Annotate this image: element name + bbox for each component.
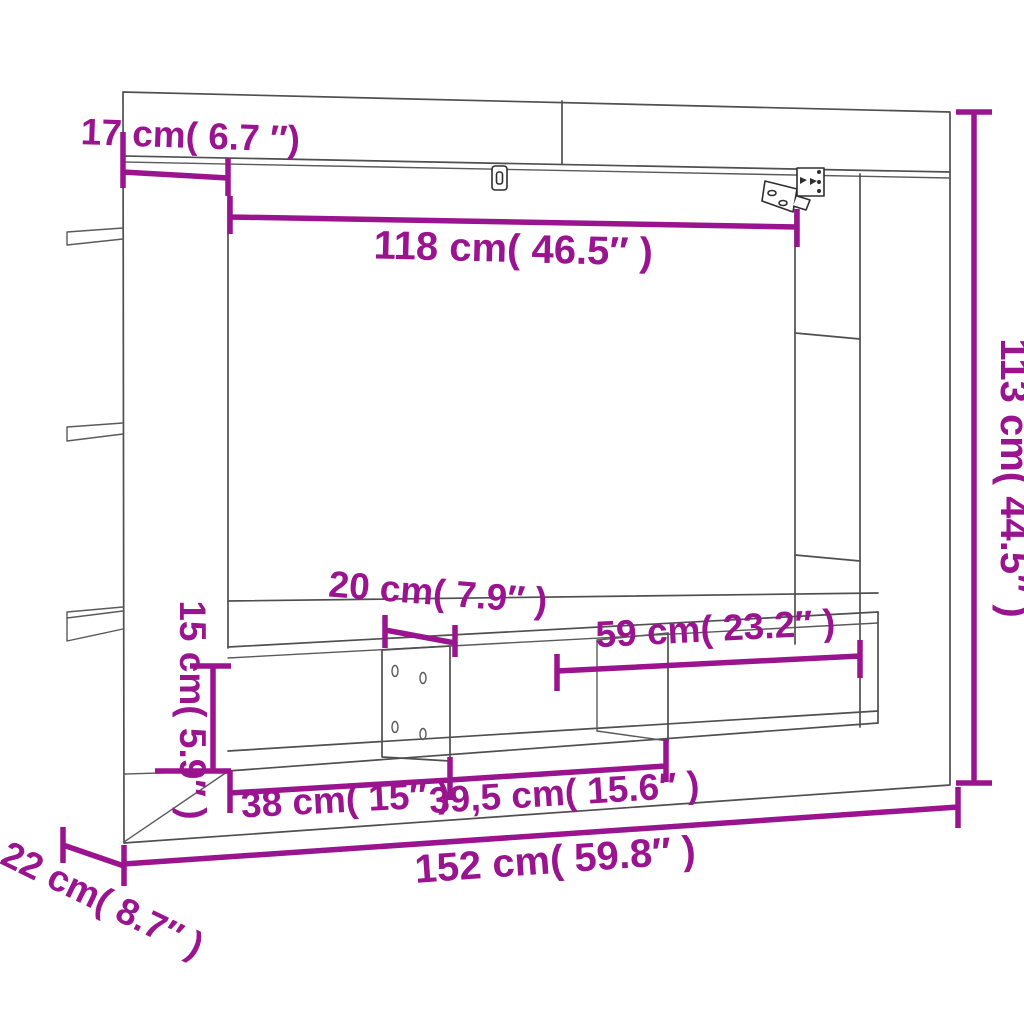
dimension-label-overall-height: 113 cm( 44.5″ ) [992, 338, 1024, 617]
dimension-right-shelf-width: 59 cm( 23.2″ ) [557, 602, 860, 691]
right-column-shelf-2 [795, 555, 860, 561]
keyhole-hanger-icon [492, 166, 507, 190]
diagram-canvas: 17 cm( 6.7 ″) 118 cm( 46.5″ ) 113 cm( 44… [0, 0, 1024, 1024]
screw-hole [420, 673, 426, 684]
dimension-label-center-compartment-width: 39,5 cm( 15.6″ ) [428, 764, 701, 821]
right-column-shelf-1 [795, 333, 860, 339]
product-dimension-diagram: 17 cm( 6.7 ″) 118 cm( 46.5″ ) 113 cm( 44… [0, 0, 1024, 1024]
dimension-label-top-offset: 17 cm( 6.7 ″) [80, 111, 301, 160]
dimension-label-overall-width: 152 cm( 59.8″ ) [413, 828, 697, 892]
screw-hole [392, 722, 398, 733]
left-shelf-middle [67, 423, 123, 441]
dimension-top-offset: 17 cm( 6.7 ″) [80, 111, 301, 196]
dimension-label-depth: 22 cm( 8.7″ ) [0, 833, 210, 966]
dimension-left-compartment-width: 38 cm( 15″ ) [230, 757, 451, 825]
screw-hole [420, 729, 426, 740]
dimension-label-left-compartment-width: 38 cm( 15″ ) [240, 774, 451, 826]
dimension-center-compartment-width: 39,5 cm( 15.6″ ) [428, 739, 701, 821]
left-shelf-top [67, 228, 123, 245]
dimension-inner-width: 118 cm( 46.5″ ) [230, 196, 797, 275]
dimension-overall-height: 113 cm( 44.5″ ) [956, 112, 1024, 783]
back-panel [123, 92, 950, 843]
left-shelf-bottom [67, 607, 123, 641]
bench-center-divider [382, 646, 450, 761]
dimension-label-compartment-height: 15 cm( 5.9″ ) [172, 600, 213, 819]
dimension-label-divider-width: 20 cm( 7.9″ ) [327, 563, 549, 621]
dimension-compartment-height: 15 cm( 5.9″ ) [155, 600, 231, 819]
dimension-label-right-shelf-width: 59 cm( 23.2″ ) [595, 602, 837, 655]
dimension-label-inner-width: 118 cm( 46.5″ ) [373, 223, 653, 274]
screw-hole [392, 666, 398, 677]
dimension-depth: 22 cm( 8.7″ ) [0, 827, 210, 966]
